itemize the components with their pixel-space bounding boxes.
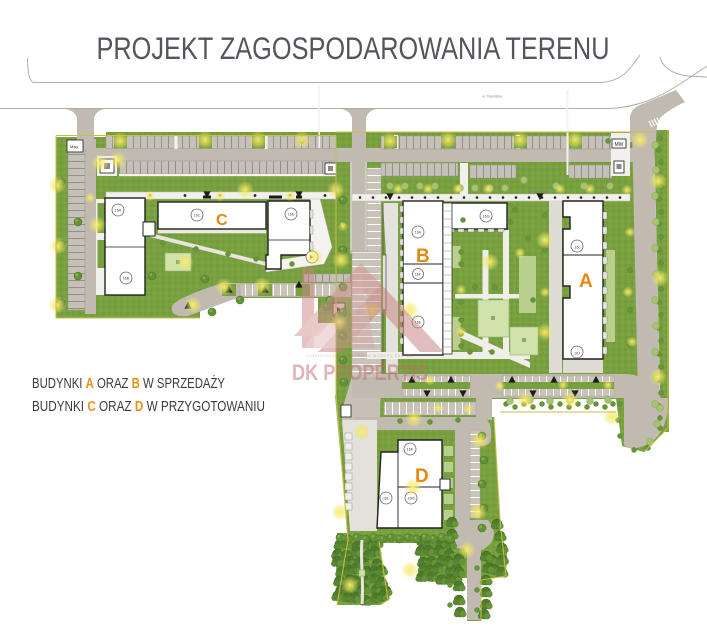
svg-text:16I: 16I [575, 245, 580, 249]
svg-text:NIERUCHOMOŚCI, KTÓRYM MOŻESZ Z: NIERUCHOMOŚCI, KTÓRYM MOŻESZ ZAUFAĆ [306, 353, 413, 358]
svg-text:ul. Cedrowa: ul. Cedrowa [528, 190, 546, 194]
svg-text:MW: MW [615, 142, 624, 148]
svg-text:A: A [579, 271, 593, 292]
svg-text:C: C [216, 212, 228, 229]
svg-text:16M: 16M [408, 496, 415, 500]
svg-text:16K: 16K [407, 447, 414, 451]
svg-text:16A: 16A [115, 208, 122, 212]
svg-text:ul. Twardzika: ul. Twardzika [482, 95, 502, 99]
svg-text:B: B [416, 246, 430, 267]
svg-text:PROJEKT ZAGOSPODAROWANIA TEREN: PROJEKT ZAGOSPODAROWANIA TERENU [97, 30, 610, 66]
svg-text:BUDYNKI A ORAZ B W SPRZEDAŻY: BUDYNKI A ORAZ B W SPRZEDAŻY [32, 374, 225, 392]
svg-text:DK PROPERTIS: DK PROPERTIS [292, 360, 428, 385]
svg-text:16H: 16H [415, 230, 422, 234]
svg-text:16C: 16C [194, 213, 201, 217]
svg-text:16J: 16J [574, 351, 580, 355]
svg-text:BUDYNKI C ORAZ D W PRZYGOTOWAN: BUDYNKI C ORAZ D W PRZYGOTOWANIU [32, 399, 265, 415]
svg-text:16D: 16D [288, 212, 295, 216]
svg-text:16G: 16G [483, 214, 490, 218]
svg-text:Mag: Mag [70, 144, 78, 149]
svg-text:16L: 16L [383, 496, 389, 500]
svg-text:16B: 16B [123, 276, 130, 280]
svg-text:16F: 16F [415, 272, 422, 276]
